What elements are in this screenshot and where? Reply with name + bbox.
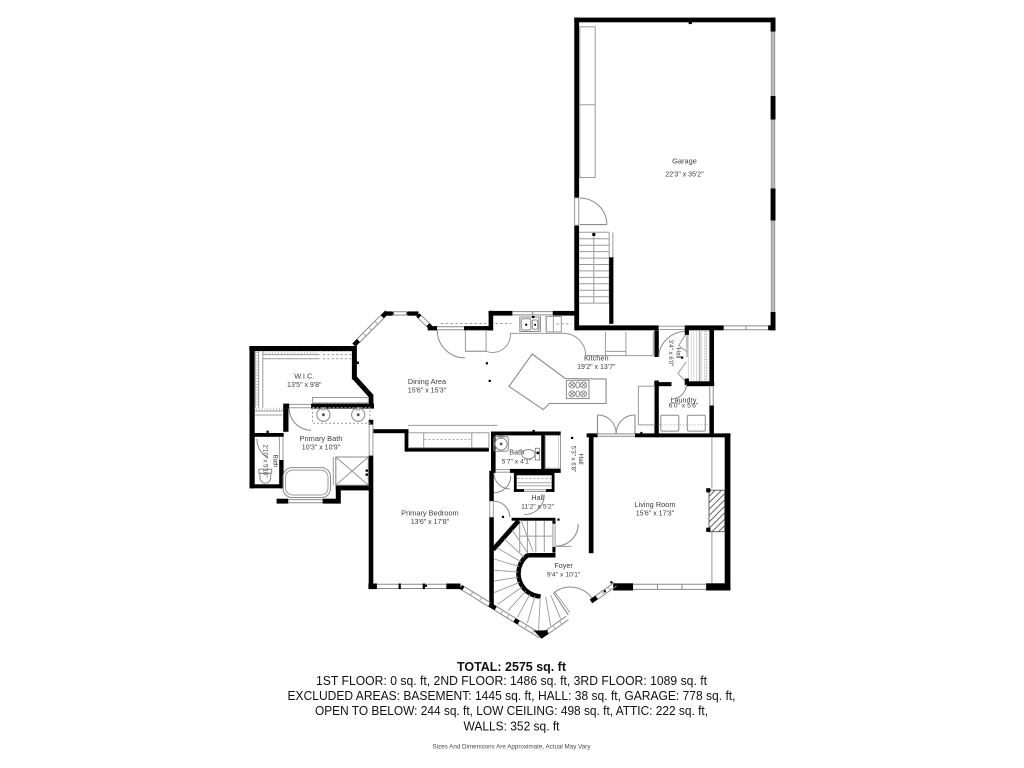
svg-text:Kitchen: Kitchen [584, 353, 609, 362]
svg-text:15'6" x 17'3": 15'6" x 17'3" [636, 511, 675, 518]
svg-text:TOTAL: 2575 sq. ft: TOTAL: 2575 sq. ft [457, 659, 567, 674]
svg-text:13'5" x 9'8": 13'5" x 9'8" [287, 382, 322, 389]
svg-text:15'6" x 15'3": 15'6" x 15'3" [408, 387, 447, 394]
svg-text:13'6" x 17'8": 13'6" x 17'8" [411, 519, 450, 526]
svg-text:Hall: Hall [531, 493, 544, 502]
svg-text:W.I.C.: W.I.C. [294, 371, 314, 380]
svg-text:9'4" x 10'1": 9'4" x 10'1" [547, 571, 581, 578]
svg-text:3'4" x 6'0": 3'4" x 6'0" [667, 340, 674, 367]
svg-text:Bath: Bath [272, 455, 279, 468]
svg-text:11'2" x 5'2": 11'2" x 5'2" [521, 503, 555, 510]
svg-text:19'2" x 13'7": 19'2" x 13'7" [577, 364, 616, 371]
svg-text:Dining Area: Dining Area [408, 377, 447, 386]
svg-text:Living Room: Living Room [634, 500, 675, 509]
svg-text:WALLS: 352 sq. ft: WALLS: 352 sq. ft [464, 719, 560, 733]
svg-text:2'10" x 5'10": 2'10" x 5'10" [262, 445, 268, 478]
svg-text:Bath: Bath [509, 448, 524, 457]
svg-text:Hall: Hall [675, 348, 682, 359]
svg-text:Sizes And Dimensions Are Appro: Sizes And Dimensions Are Approximate, Ac… [433, 743, 592, 750]
svg-text:1ST FLOOR: 0 sq. ft, 2ND FLOOR: 1ST FLOOR: 0 sq. ft, 2ND FLOOR: 1486 sq.… [316, 674, 707, 688]
svg-text:EXCLUDED AREAS: BASEMENT: 1445: EXCLUDED AREAS: BASEMENT: 1445 sq. ft, H… [288, 689, 736, 703]
svg-text:5'7" x 4'1": 5'7" x 4'1" [502, 459, 532, 466]
svg-text:Primary Bedroom: Primary Bedroom [401, 508, 459, 517]
svg-text:5'3" x 6'8": 5'3" x 6'8" [569, 446, 576, 473]
svg-text:Hall: Hall [577, 453, 584, 464]
svg-text:10'3" x 10'9": 10'3" x 10'9" [302, 445, 341, 452]
svg-text:Garage: Garage [672, 157, 697, 166]
svg-text:OPEN TO BELOW: 244 sq. ft, LOW: OPEN TO BELOW: 244 sq. ft, LOW CEILING: … [315, 704, 708, 718]
svg-text:Primary Bath: Primary Bath [300, 434, 343, 443]
svg-text:22'3" x 35'2": 22'3" x 35'2" [665, 172, 704, 179]
svg-text:6'0" x 5'6": 6'0" x 5'6" [669, 403, 699, 410]
svg-text:Foyer: Foyer [554, 561, 573, 570]
